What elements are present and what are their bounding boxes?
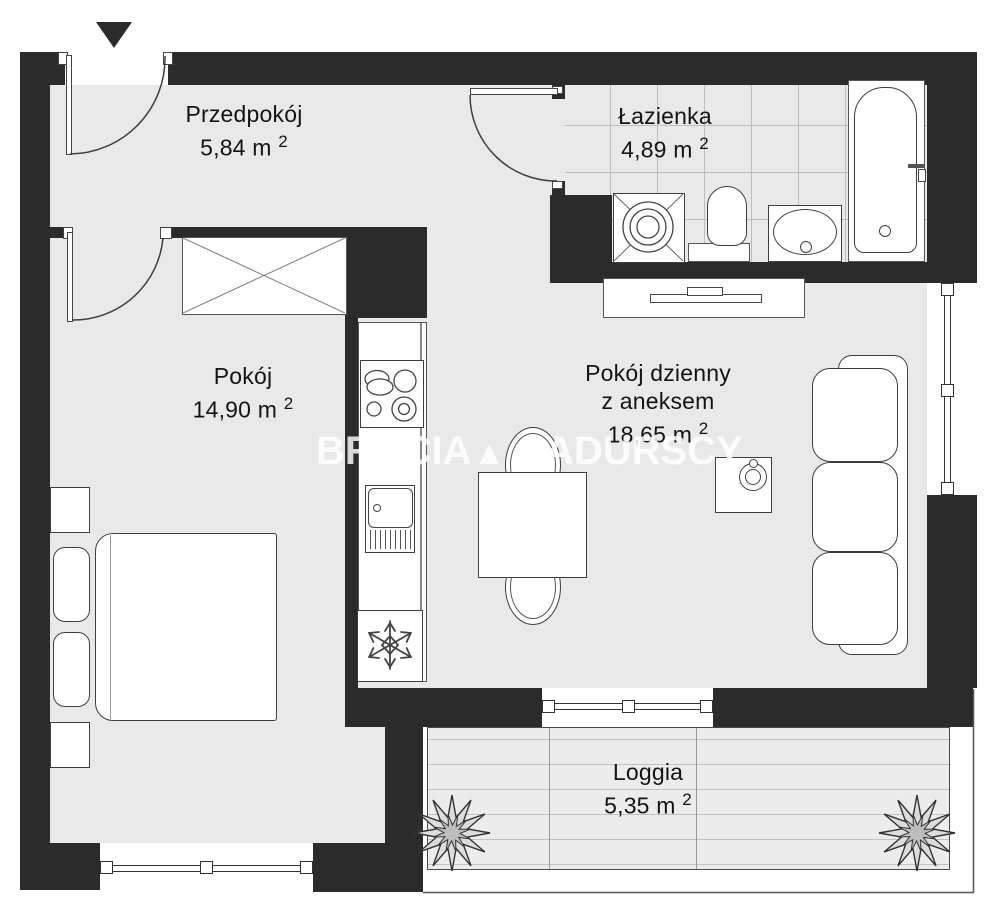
deck-plank-line (428, 739, 949, 740)
nightstand (50, 487, 90, 533)
toilet (707, 186, 747, 246)
agency-watermark: BRACIA▲ SADURSCY (316, 429, 743, 474)
bed (95, 533, 277, 721)
window-mullion (300, 861, 313, 874)
bathtub (848, 80, 925, 262)
watermark-triangle-icon: ▲ (473, 434, 507, 472)
fridge (357, 610, 423, 682)
room-label-bedroom: Pokój 14,90 m 2 (133, 362, 353, 424)
entrance-arrow-icon (96, 22, 132, 48)
sink-drainer-hatch (370, 530, 411, 549)
cooktop-burners (361, 361, 422, 426)
window-mullion (200, 861, 213, 874)
deck-plank-line (428, 839, 949, 840)
nightstand (50, 722, 90, 768)
wall-bedroom-bottom-left (20, 843, 100, 890)
entrance-jamb (163, 52, 173, 65)
room-name: Łazienka (555, 102, 775, 130)
wall-living-bottom (713, 688, 973, 727)
entrance-opening (65, 52, 168, 85)
entrance-door-leaf (66, 55, 72, 155)
room-area: 14,90 m 2 (133, 390, 353, 424)
watermark-word-2: SADURSCY (518, 429, 742, 473)
window-mullion (941, 482, 954, 495)
room-area: 5,35 m 2 (538, 786, 758, 820)
watermark-word-1: BRACIA (316, 429, 472, 473)
plant-icon (410, 791, 494, 875)
room-area: 4,89 m 2 (555, 130, 775, 164)
window-mullion (941, 384, 954, 397)
room-name: Przedpokój (134, 100, 354, 128)
room-label-bathroom: Łazienka 4,89 m 2 (555, 102, 775, 164)
room-name: Pokój (133, 362, 353, 390)
wall-kitchen-step (345, 688, 427, 727)
tile-line (845, 85, 846, 262)
bed-fold-line (110, 535, 111, 719)
side-table-notch (749, 459, 758, 468)
wall-kitchen-block (345, 227, 427, 318)
dining-table (478, 472, 587, 578)
pillow (53, 632, 90, 707)
sink-drain (373, 504, 381, 512)
wall-top-right-block (927, 52, 977, 287)
room-area: 5,84 m 2 (134, 128, 354, 162)
room-name: Pokój dzienny (548, 359, 768, 387)
floor-plan: Przedpokój 5,84 m 2 Łazienka 4,89 m 2 Po… (0, 0, 1000, 917)
bedroom-door-leaf (67, 232, 73, 322)
wardrobe (182, 237, 347, 315)
room-name: Loggia (538, 758, 758, 786)
bathtub-faucet-knob (918, 169, 926, 182)
room-label-hallway: Przedpokój 5,84 m 2 (134, 100, 354, 162)
wall-right-mid (927, 495, 977, 688)
bathroom-sink (768, 205, 842, 262)
window-mullion (941, 283, 954, 296)
bathroom-door-leaf (470, 88, 558, 95)
window-mullion (100, 861, 113, 874)
sofa-cushion (812, 552, 898, 645)
bathroom-door-jamb (552, 181, 563, 189)
tv-mount (687, 287, 723, 296)
washing-machine (613, 193, 685, 263)
bathtub-faucet (908, 164, 924, 168)
sink-faucet (800, 241, 812, 253)
room-label-loggia: Loggia 5,35 m 2 (538, 758, 758, 820)
room-name-2: z aneksem (548, 387, 768, 415)
balcony-door-mullion (542, 700, 555, 713)
balcony-door-mullion (622, 700, 635, 713)
wall-left-of-balcony-door (427, 688, 542, 727)
pillow (53, 547, 90, 622)
wall-top (168, 52, 927, 85)
wardrobe-cross (183, 238, 345, 313)
snowflake-icon (358, 611, 421, 680)
sofa-cushion (812, 462, 898, 552)
bathtub-drain (879, 225, 891, 237)
deck-plank-line (428, 864, 949, 865)
wall-left (20, 52, 50, 890)
sofa-cushion (812, 368, 898, 462)
washing-machine-drum (614, 194, 683, 261)
kitchen-sink (365, 485, 415, 553)
bedroom-door-jamb (160, 227, 172, 239)
side-table-ring-inner (745, 469, 761, 485)
plant-icon (875, 791, 959, 875)
cooktop (360, 360, 424, 428)
balcony-door-mullion (700, 700, 713, 713)
wall-bath-block (550, 195, 612, 268)
bedroom-floor-ext (358, 727, 385, 843)
wall-bedroom-bottom-right (313, 843, 423, 892)
